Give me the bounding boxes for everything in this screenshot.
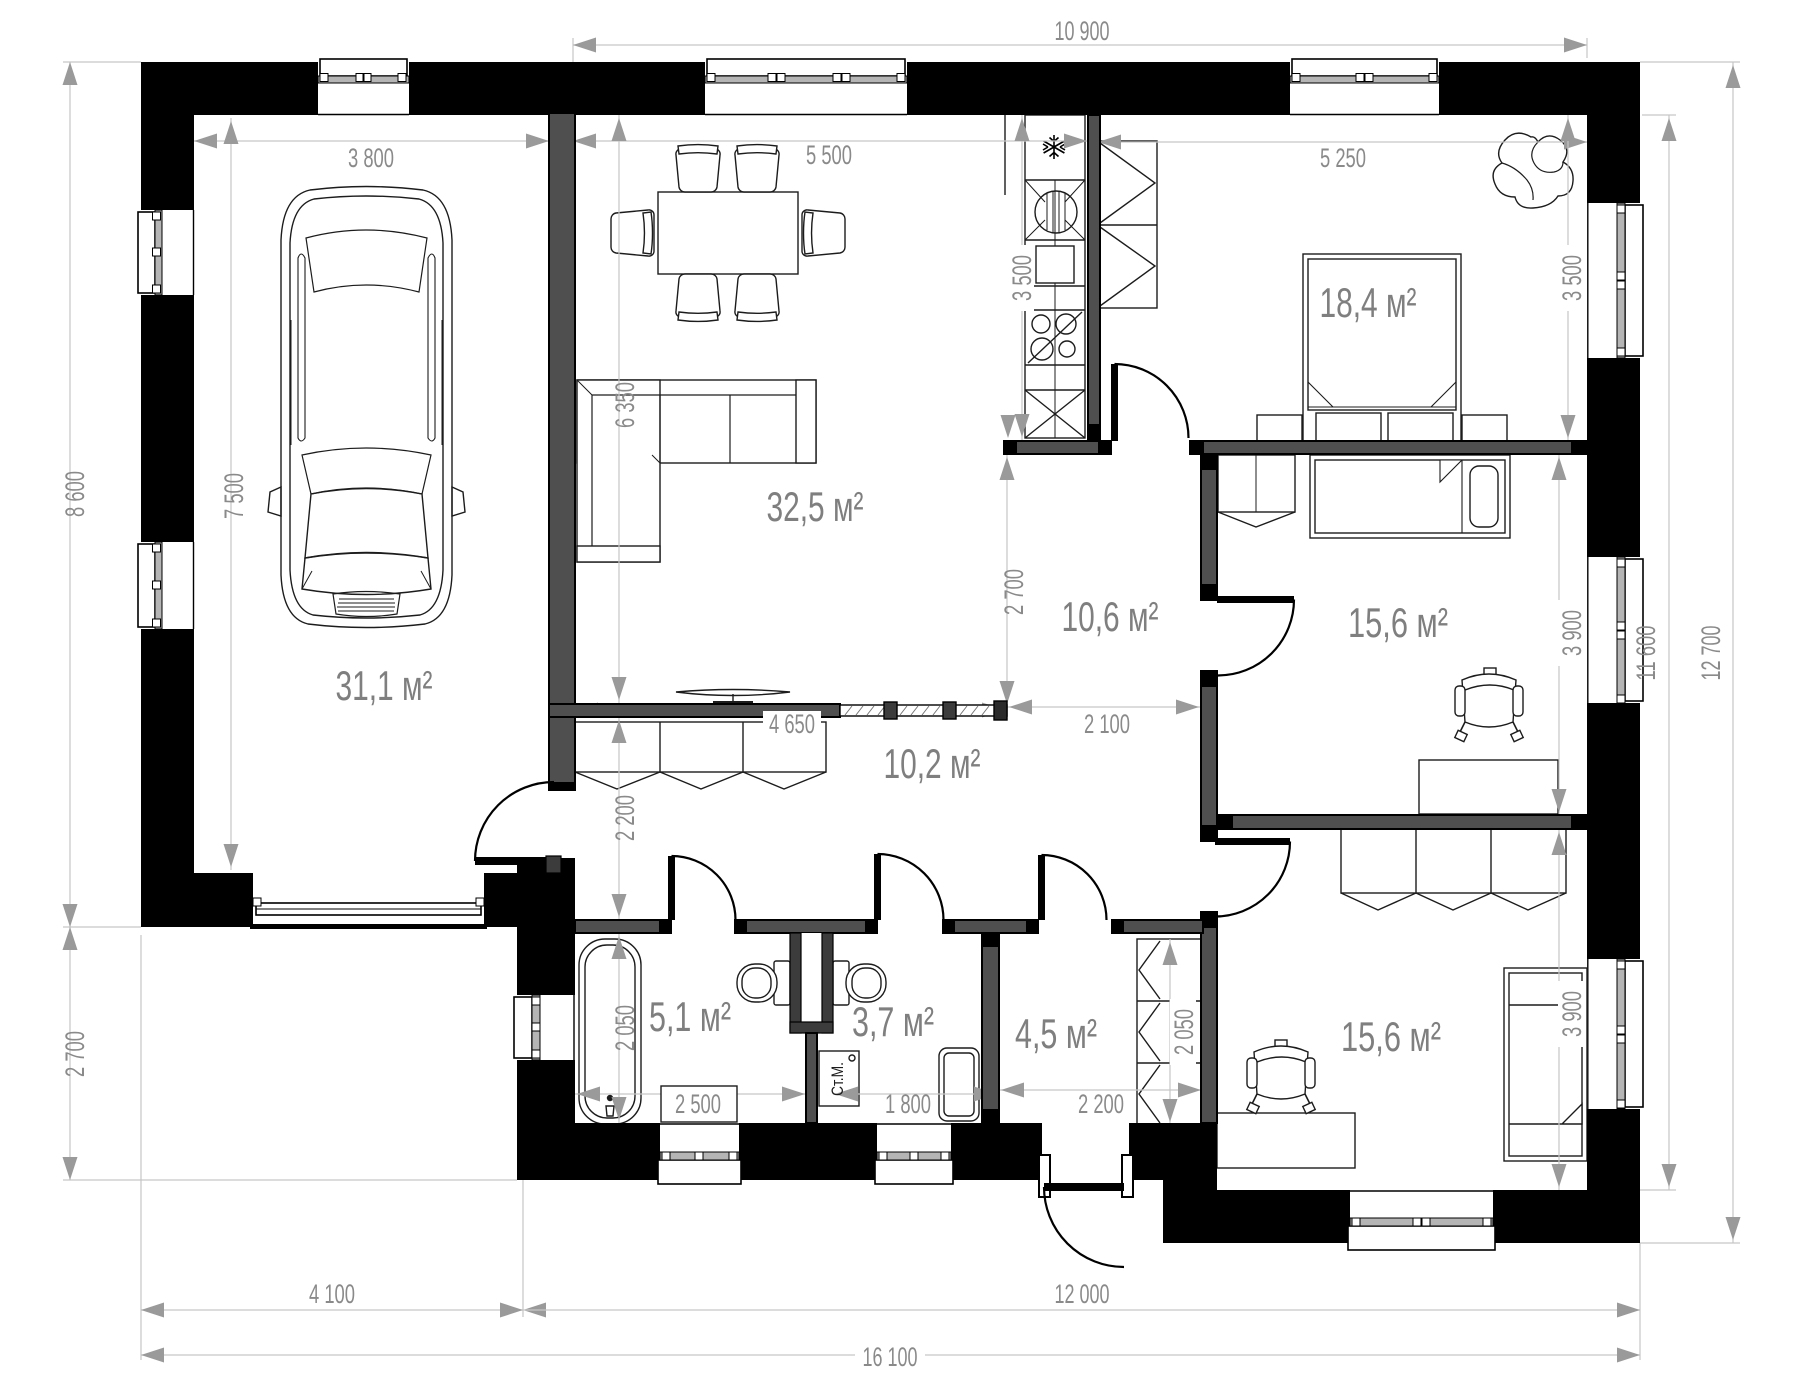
- svg-text:5,1 м²: 5,1 м²: [649, 993, 731, 1040]
- svg-text:2 200: 2 200: [1078, 1089, 1124, 1119]
- svg-text:3 800: 3 800: [348, 143, 394, 173]
- svg-text:2 700: 2 700: [999, 569, 1029, 615]
- svg-text:11 600: 11 600: [1631, 626, 1661, 681]
- svg-text:15,6 м²: 15,6 м²: [1348, 599, 1448, 646]
- svg-text:5 500: 5 500: [806, 140, 852, 170]
- svg-text:10,6 м²: 10,6 м²: [1062, 593, 1159, 640]
- svg-text:4 100: 4 100: [309, 1279, 355, 1309]
- svg-text:7 500: 7 500: [219, 473, 249, 519]
- svg-text:3 500: 3 500: [1007, 255, 1037, 301]
- svg-text:4 650: 4 650: [769, 709, 815, 739]
- svg-text:Ст.М.: Ст.М.: [828, 1062, 847, 1096]
- svg-text:10 900: 10 900: [1055, 16, 1110, 46]
- svg-text:8 600: 8 600: [60, 471, 90, 517]
- svg-text:2 200: 2 200: [610, 795, 640, 841]
- svg-text:2 050: 2 050: [610, 1005, 640, 1051]
- svg-text:3 900: 3 900: [1557, 610, 1587, 656]
- svg-text:3 500: 3 500: [1557, 255, 1587, 301]
- svg-text:3,7 м²: 3,7 м²: [852, 998, 934, 1045]
- svg-text:2 050: 2 050: [1169, 1009, 1199, 1055]
- svg-text:2 100: 2 100: [1084, 709, 1130, 739]
- svg-text:5 250: 5 250: [1320, 143, 1366, 173]
- svg-text:4,5 м²: 4,5 м²: [1015, 1010, 1097, 1057]
- svg-text:16 100: 16 100: [863, 1342, 918, 1372]
- svg-text:12 000: 12 000: [1055, 1279, 1110, 1309]
- svg-text:32,5 м²: 32,5 м²: [767, 483, 864, 530]
- svg-text:2 700: 2 700: [60, 1031, 90, 1077]
- svg-text:12 700: 12 700: [1696, 626, 1726, 681]
- svg-text:31,1 м²: 31,1 м²: [336, 662, 433, 709]
- svg-text:15,6 м²: 15,6 м²: [1341, 1013, 1441, 1060]
- svg-text:6 350: 6 350: [610, 382, 640, 428]
- svg-text:18,4 м²: 18,4 м²: [1320, 279, 1417, 326]
- svg-text:1 800: 1 800: [885, 1089, 931, 1119]
- svg-text:10,2 м²: 10,2 м²: [884, 740, 981, 787]
- svg-text:3 900: 3 900: [1557, 991, 1587, 1037]
- svg-text:2 500: 2 500: [675, 1089, 721, 1119]
